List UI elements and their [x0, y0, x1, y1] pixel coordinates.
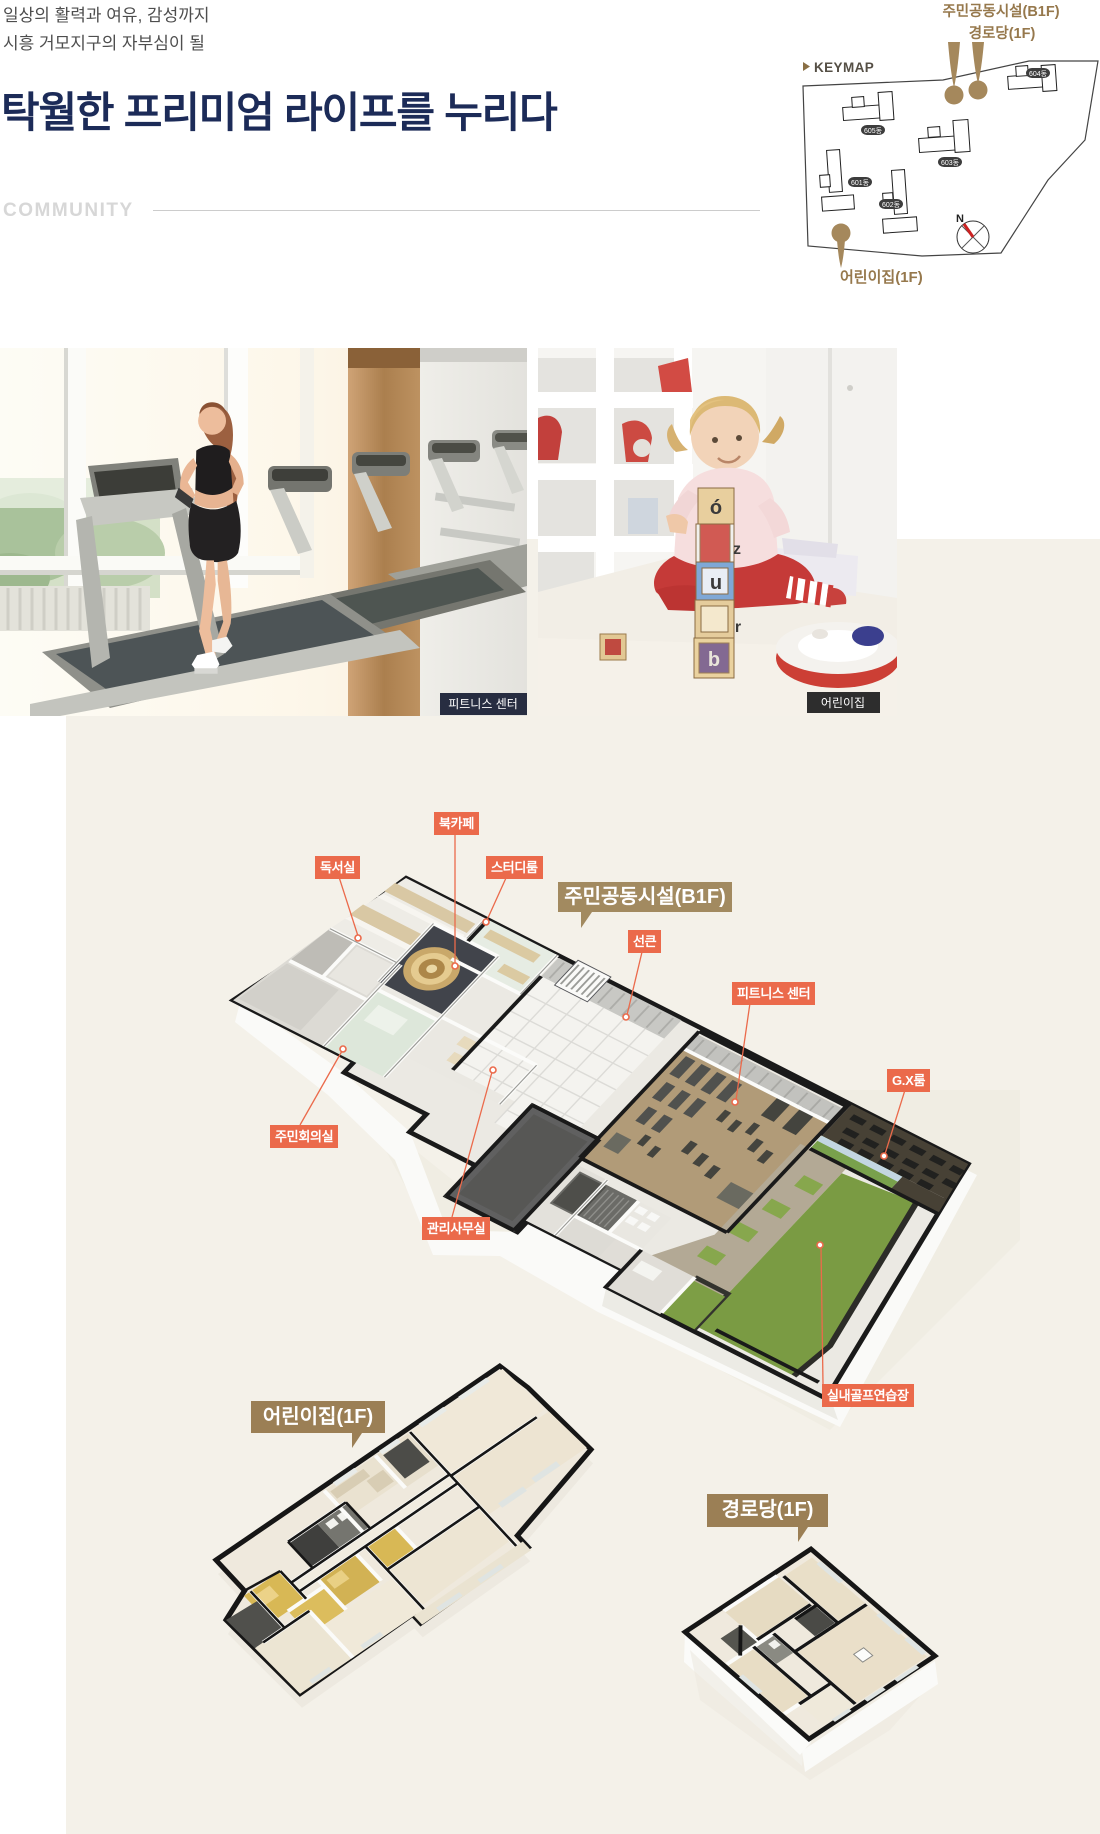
- svg-text:ó: ó: [710, 497, 722, 519]
- svg-text:603동: 603동: [941, 159, 960, 167]
- svg-text:604동: 604동: [1029, 70, 1048, 78]
- svg-text:경로당(1F): 경로당(1F): [969, 24, 1036, 42]
- svg-text:주민공동시설(B1F): 주민공동시설(B1F): [942, 3, 1059, 20]
- svg-text:z: z: [733, 541, 741, 558]
- svg-text:601동: 601동: [851, 179, 870, 187]
- svg-text:KEYMAP: KEYMAP: [814, 60, 874, 75]
- svg-text:602동: 602동: [882, 201, 901, 209]
- svg-text:u: u: [710, 572, 722, 594]
- svg-text:605동: 605동: [864, 127, 883, 135]
- svg-text:r: r: [735, 619, 741, 636]
- svg-text:피트니스 센터: 피트니스 센터: [448, 697, 518, 711]
- svg-text:N: N: [956, 213, 964, 225]
- svg-text:어린이집(1F): 어린이집(1F): [840, 268, 923, 286]
- svg-text:b: b: [708, 649, 720, 671]
- svg-text:어린이집: 어린이집: [821, 696, 865, 710]
